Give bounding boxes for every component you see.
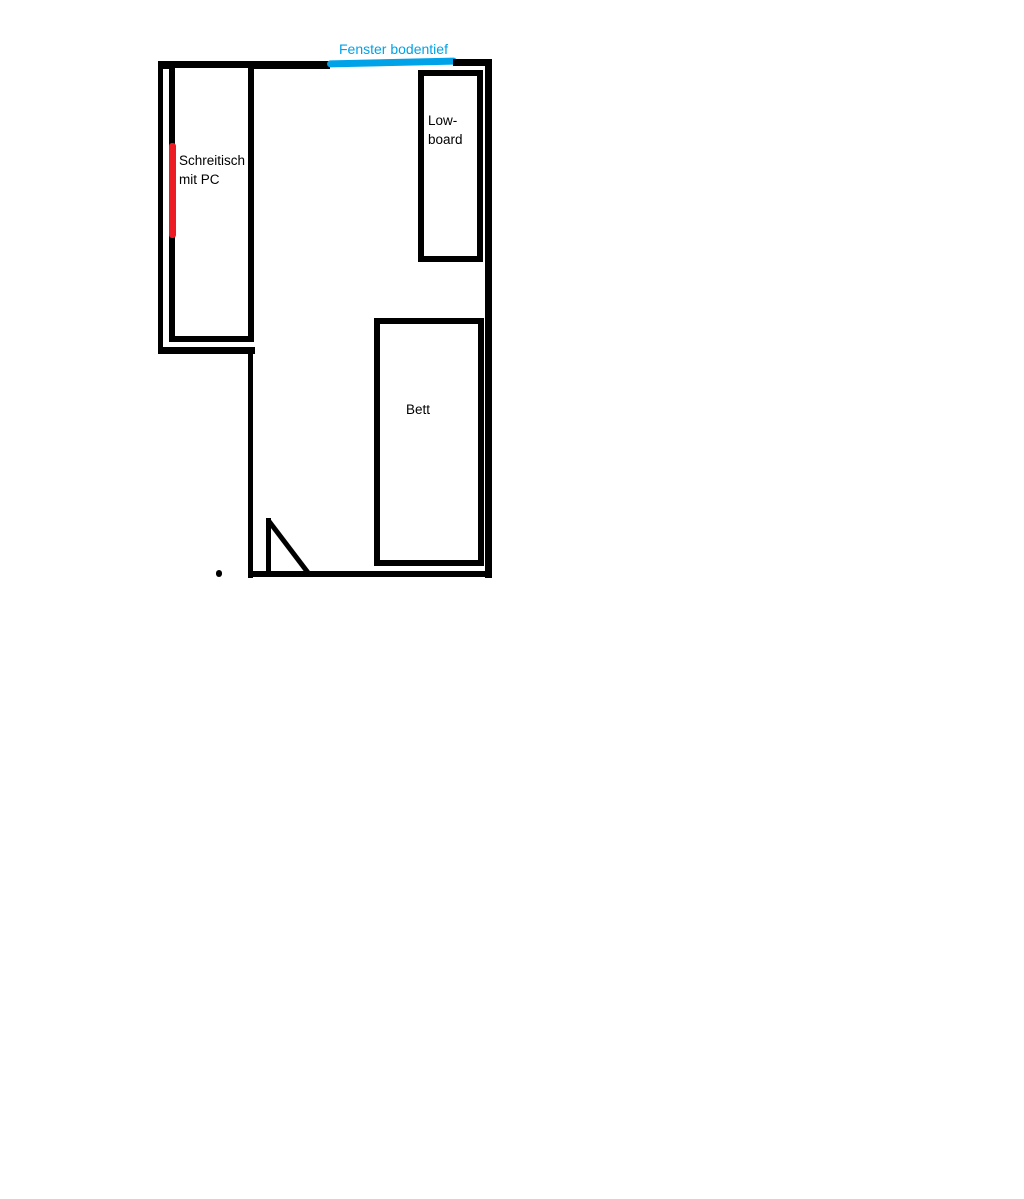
desk-rectangle — [169, 62, 254, 342]
bottom-wall — [248, 571, 492, 577]
lowboard-label-line1: Low- — [428, 111, 463, 130]
lowboard-label: Low- board — [428, 111, 463, 149]
floorplan-canvas: Fenster bodentief Schreitisch mit PC Low… — [0, 0, 1024, 1199]
lowboard-rectangle — [418, 70, 483, 262]
lowboard-label-line2: board — [428, 130, 463, 149]
desk-label: Schreitisch mit PC — [179, 151, 245, 189]
right-wall — [485, 59, 492, 578]
outer-left-wall-bottom — [158, 347, 255, 354]
window-label: Fenster bodentief — [339, 41, 448, 57]
bed-rectangle — [374, 318, 484, 566]
door-leaf-line — [266, 518, 271, 574]
bed-label: Bett — [406, 400, 430, 419]
desk-label-line1: Schreitisch — [179, 151, 245, 170]
desk-label-line2: mit PC — [179, 170, 245, 189]
pc-marker-line — [169, 143, 176, 238]
floor-window-line — [327, 58, 457, 68]
outer-left-wall — [158, 61, 163, 353]
door-swing-diagonal — [0, 0, 1024, 1199]
reference-dot — [216, 570, 222, 577]
inner-left-wall — [248, 347, 253, 578]
